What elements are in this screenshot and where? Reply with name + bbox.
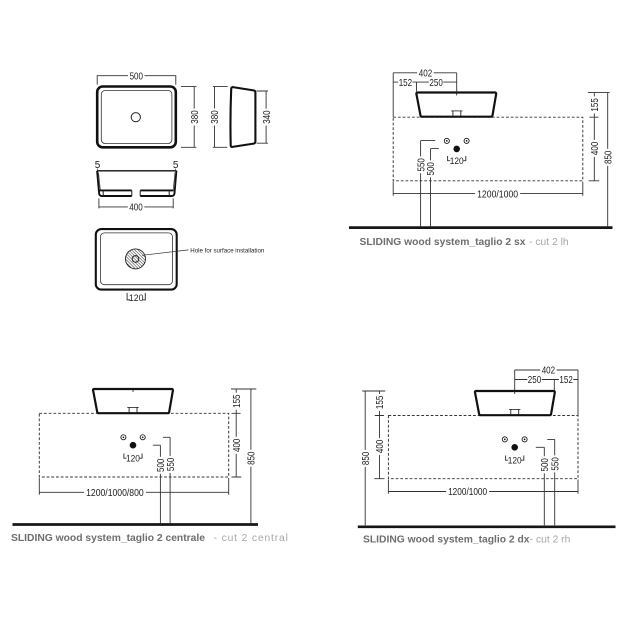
svg-text:402: 402 xyxy=(542,366,556,377)
svg-text:380: 380 xyxy=(190,110,201,124)
svg-text:155: 155 xyxy=(375,396,386,410)
svg-text:400: 400 xyxy=(232,438,243,452)
svg-text:500: 500 xyxy=(540,458,551,472)
svg-text:SLIDING wood system_taglio 2 c: SLIDING wood system_taglio 2 centrale- c… xyxy=(11,533,289,544)
svg-text:550: 550 xyxy=(550,457,561,471)
svg-text:400: 400 xyxy=(375,440,386,454)
svg-text:Hole for surface installation: Hole for surface installation xyxy=(190,248,264,255)
svg-text:120: 120 xyxy=(450,156,464,166)
svg-text:550: 550 xyxy=(166,458,177,472)
svg-text:400: 400 xyxy=(590,142,601,156)
svg-text:250: 250 xyxy=(429,78,443,89)
svg-text:1200/1000: 1200/1000 xyxy=(477,189,518,200)
svg-text:850: 850 xyxy=(361,452,372,466)
svg-text:380: 380 xyxy=(210,110,221,124)
svg-text:SLIDING wood system_taglio 2 d: SLIDING wood system_taglio 2 dx- cut 2 r… xyxy=(363,534,571,545)
svg-text:155: 155 xyxy=(232,394,243,408)
svg-text:SLIDING wood system_taglio 2 s: SLIDING wood system_taglio 2 sx- cut 2 l… xyxy=(360,237,569,248)
svg-text:400: 400 xyxy=(129,203,143,214)
svg-text:120: 120 xyxy=(126,454,140,464)
svg-text:152: 152 xyxy=(559,375,573,386)
svg-text:500: 500 xyxy=(130,71,144,82)
svg-text:152: 152 xyxy=(399,78,413,89)
svg-text:120: 120 xyxy=(129,293,144,303)
svg-text:250: 250 xyxy=(528,375,542,386)
svg-text:155: 155 xyxy=(590,98,601,112)
svg-text:1200/1000: 1200/1000 xyxy=(448,487,487,498)
svg-text:500: 500 xyxy=(426,162,437,176)
svg-text:120: 120 xyxy=(508,456,522,466)
svg-text:850: 850 xyxy=(247,451,258,465)
svg-text:340: 340 xyxy=(262,110,273,124)
svg-text:850: 850 xyxy=(603,150,614,164)
svg-text:1200/1000/800: 1200/1000/800 xyxy=(86,488,144,499)
